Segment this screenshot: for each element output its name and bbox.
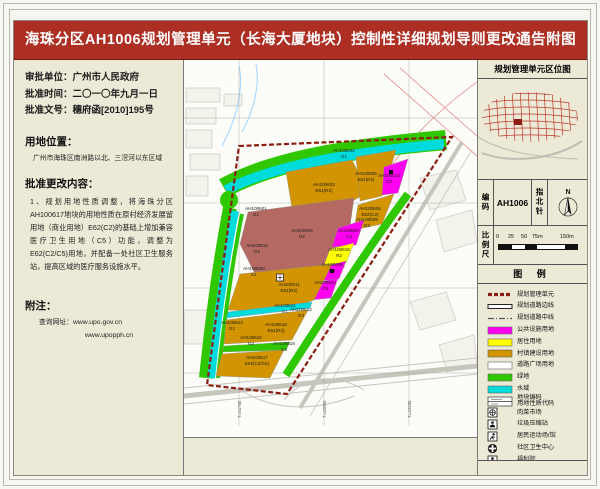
legend-item-11: 垃圾压缩站 (487, 419, 587, 431)
changes-header: 批准更改内容： (25, 176, 174, 191)
grid-coordinate-label: T=42250 (407, 400, 412, 418)
legend-label: 公共设施用地 (517, 327, 554, 334)
approval-doc-line: 批准文号：穗府函[2010]195号 (25, 103, 174, 120)
parcel-label-AH100605: AH100605E61(R2) (355, 171, 377, 182)
legend-label: 居住用地 (517, 339, 542, 346)
location-map (478, 79, 587, 180)
scale-tick-75m: 75m (532, 234, 543, 240)
legend-symbol-road-center (487, 314, 517, 323)
scale-bar-segments (498, 244, 578, 250)
legend-symbol-fill (487, 385, 517, 394)
grid-coordinate-label: T=41750 (237, 400, 242, 418)
approval-doc-label: 批准文号： (25, 105, 73, 116)
code-label: 编码 (478, 180, 494, 225)
legend-symbol-code-box (487, 396, 517, 407)
north-arrow-icon: N (554, 186, 582, 220)
approval-unit-label: 审批单位： (25, 72, 73, 83)
legend-label: 规划道路中线 (517, 315, 554, 322)
legend-symbol-icon-welfare (487, 455, 517, 460)
approval-unit-value: 广州市人民政府 (73, 72, 140, 83)
scale-tick-50: 50 (521, 234, 527, 240)
legend-label: 居民运动场/馆 (517, 433, 556, 440)
legend-symbol-fill (487, 373, 517, 382)
query-url-label: 查询网址： (39, 319, 73, 326)
legend-item-6: 道路广场用地 (487, 360, 587, 372)
approval-date-label: 批准时间： (25, 89, 73, 100)
legend-symbol-icon-market (487, 407, 517, 418)
location-text: 广州市海珠区南洲路以北、三滘河以东区域 (33, 152, 174, 162)
legend-label: 规划管理单元 (517, 292, 554, 299)
legend-item-0: 规划管理单元 (487, 289, 587, 301)
legend-item-2: 规划道路中线 (487, 313, 587, 325)
query-url-2: www.upopph.cn (85, 332, 133, 339)
planning-map: AH100601G1AH100602G1AH100603E61(R2)AH100… (184, 60, 477, 437)
approval-date-line: 批准时间：二〇一〇年九月一日 (25, 87, 174, 104)
location-map-title: 规划管理单元区位图 (478, 60, 587, 79)
legend-item-7: 绿地 (487, 372, 587, 384)
legend-label: 道路广场用地 (517, 362, 554, 369)
query-url-1: www.upo.gov.cn (73, 319, 122, 326)
parcel-label-AH100606: AH100606E62(C2) (359, 206, 381, 217)
query-urls: 查询网址：www.upo.gov.cn www.upopph.cn (39, 317, 174, 343)
page-title: 海珠分区AH1006规划管理单元（长海大厦地块）控制性详细规划导则更改通告附图 (14, 21, 587, 60)
legend-item-4: 居住用地 (487, 336, 587, 348)
parcel-label-AH100603: AH100603E61(R2) (313, 182, 335, 193)
sheet-content: 海珠分区AH1006规划管理单元（长海大厦地块）控制性详细规划导则更改通告附图 … (13, 20, 588, 476)
planning-map-svg: AH100601G1AH100602G1AH100603E61(R2)AH100… (184, 60, 477, 437)
legend-label: 绿地 (517, 374, 529, 381)
changes-text: 1、规划用地性质调整，将海珠分区AH100617地块的用地性质在原村经济发展留用… (30, 196, 173, 274)
compass-label: 指北针 (532, 180, 548, 225)
legend-symbol-boundary (487, 290, 517, 299)
scale-label: 比例尺 (478, 226, 494, 264)
approval-unit-line: 审批单位：广州市人民政府 (25, 70, 174, 87)
grid-labels: T=41750T=42000T=42250 (237, 400, 412, 418)
legend-label: 地块编码 用地性质代码 (517, 395, 554, 408)
parcel-label-AH100618: AH100618E61(R2) (265, 322, 287, 333)
notice-sheet: 海珠分区AH1006规划管理单元（长海大厦地块）控制性详细规划导则更改通告附图 … (0, 0, 600, 489)
approval-date-value: 二〇一〇年九月一日 (73, 89, 159, 100)
market-icon (277, 274, 284, 281)
location-header: 用地位置： (25, 134, 174, 149)
legend-symbol-fill (487, 326, 517, 335)
legend-symbol-icon-health (487, 443, 517, 454)
scale-bar: 0255075m150m (494, 226, 587, 264)
right-column: 规划管理单元区位图 (477, 60, 587, 475)
legend-list: 规划管理单元规划道路边线规划道路中线公共设施用地居住用地村镇建设用地道路广场用地… (478, 284, 587, 460)
legend-label: 村镇建设用地 (517, 351, 554, 358)
left-panel: 审批单位：广州市人民政府 批准时间：二〇一〇年九月一日 批准文号：穗府函[201… (14, 60, 184, 475)
legend-item-13: 社区卫生中心 (487, 442, 587, 454)
legend-label: 福利院 (517, 457, 536, 460)
parcel-label-AH100617: AH100617E62(C2/C5) (245, 355, 270, 366)
legend-title: 图 例 (478, 265, 587, 284)
legend-symbol-fill (487, 338, 517, 347)
code-row: 编码 AH1006 指北针 N (478, 180, 587, 226)
location-map-roads (478, 137, 582, 159)
svg-text:N: N (565, 189, 570, 196)
legend-item-10: 肉菜市场 (487, 407, 587, 419)
scale-tick-150m: 150m (560, 234, 574, 240)
legend-label: 社区卫生中心 (517, 445, 554, 452)
scale-row: 比例尺 0255075m150m (478, 226, 587, 265)
code-value: AH1006 (494, 180, 532, 225)
location-map-street-mesh (480, 88, 582, 143)
legend-symbol-fill (487, 349, 517, 358)
unit-location-marker (514, 119, 522, 125)
parcel-label-AH100611: AH100611E61(R2) (278, 282, 300, 293)
legend-symbol-icon-sport (487, 431, 517, 442)
scale-tick-0: 0 (496, 234, 499, 240)
map-column: AH100601G1AH100602G1AH100603E61(R2)AH100… (184, 60, 477, 475)
legend-symbol-road-edge (487, 302, 517, 311)
legend-item-12: 居民运动场/馆 (487, 431, 587, 443)
location-map-svg (478, 79, 586, 178)
scale-tick-25: 25 (508, 234, 514, 240)
legend-label: 垃圾压缩站 (517, 421, 548, 428)
grid-coordinate-label: T=42000 (322, 400, 327, 418)
legend-item-14: 福利院 (487, 454, 587, 460)
right-panel: 规划管理单元区位图 (478, 60, 587, 461)
legend-item-5: 村镇建设用地 (487, 348, 587, 360)
notes-header: 附注： (25, 298, 174, 313)
map-bottom-margin (184, 437, 477, 475)
legend-item-1: 规划道路边线 (487, 301, 587, 313)
legend-item-3: 公共设施用地 (487, 324, 587, 336)
legend-symbol-fill (487, 361, 517, 370)
approval-doc-value: 穗府函[2010]195号 (73, 105, 154, 116)
legend-symbol-icon-trash (487, 419, 517, 430)
legend-label: 规划道路边线 (517, 303, 554, 310)
compass-cell: N (548, 180, 587, 225)
legend-item-9: 地块编码 用地性质代码 (487, 395, 587, 407)
legend-label: 水域 (517, 386, 529, 393)
legend-label: 肉菜市场 (517, 410, 542, 417)
approval-info: 审批单位：广州市人民政府 批准时间：二〇一〇年九月一日 批准文号：穗府函[201… (25, 70, 174, 120)
